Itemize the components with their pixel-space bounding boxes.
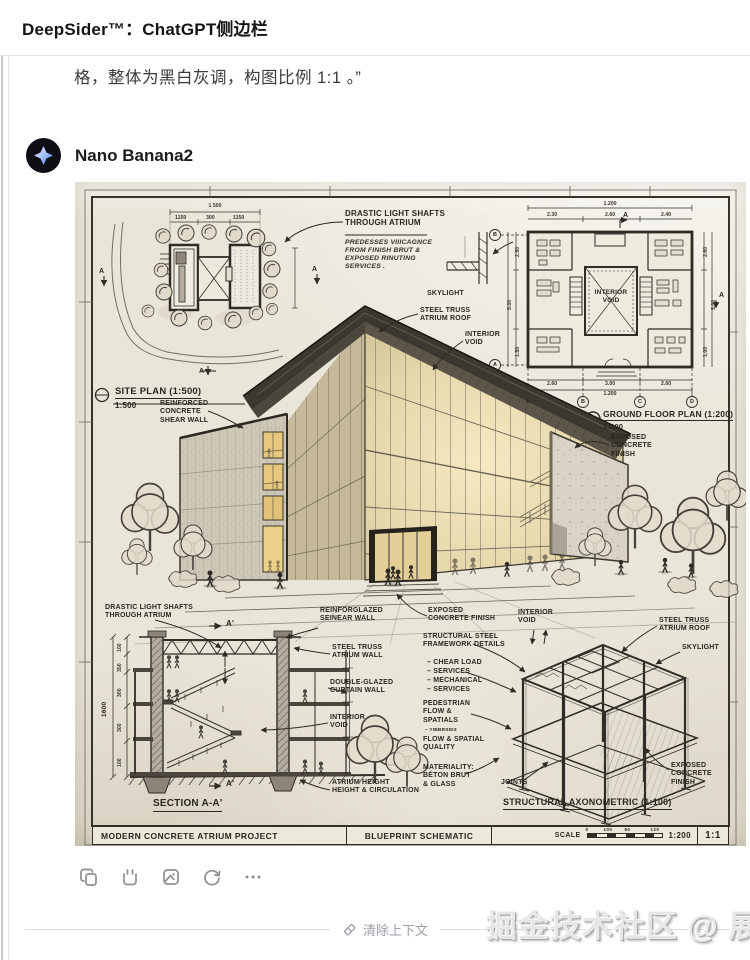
- scale-tick-1: 100: [604, 827, 613, 832]
- axo-label-skylight: SKYLIGHT: [682, 644, 719, 652]
- section-label-drastic: DRASTIC LIGHT SHAFTS THROUGH ATRIUM: [105, 604, 193, 621]
- site-marker-a-left: A: [99, 268, 104, 276]
- section-dim-2: 350: [117, 663, 123, 672]
- site-dim-2: 300: [206, 215, 215, 221]
- site-dim-3: 1150: [233, 215, 244, 221]
- label-shear-wall: REINFORCED CONCRETE SHEAR WALL: [160, 400, 208, 425]
- label-skylight-detail: SKYLIGHT: [427, 290, 464, 298]
- site-marker-a-bottom: A: [199, 368, 204, 376]
- image-icon[interactable]: [160, 866, 182, 888]
- gfp-marker-a-right: A: [719, 292, 724, 300]
- gfp-dim-right-2: 5.00: [711, 300, 717, 310]
- site-dim-1: 1150: [175, 215, 186, 221]
- gfp-dim-left-1: 2.50: [515, 247, 521, 257]
- gfp-dim-top-2: 2.60: [605, 212, 615, 218]
- label-steel-truss-roof: STEEL TRUSS ATRIUM ROOF: [420, 307, 471, 324]
- watermark-text: 掘金技术社区 @ 展菲: [486, 901, 750, 946]
- section-label-truss-wall: STEEL TRUSS ATRIUM WALL: [332, 644, 383, 661]
- site-plan-scale: 1:500: [115, 401, 136, 410]
- section-label-reinforglazed: REINFORGLAZED SEINEAR WALL: [320, 607, 383, 624]
- label-exposed-concrete-right: EXPOSED CONCRETE FINISH: [611, 434, 652, 459]
- label-interior-void-top: INTERIOR VOID: [465, 331, 500, 348]
- section-dim-1: 100: [117, 643, 123, 652]
- scale-value: 1:200: [669, 831, 691, 840]
- axo-label-materiality: MATERIALITY: BÉTON BRUT & GLASS: [423, 764, 474, 789]
- ground-floor-plan-scale: 1:200: [603, 423, 623, 432]
- divider-line-left: [25, 929, 330, 930]
- gfp-dim-right-1: 2.80: [703, 247, 709, 257]
- blueprint-linework: [75, 182, 746, 846]
- site-dim-overall: 1 500: [190, 203, 240, 209]
- gfp-dim-right-3: 1.00: [703, 347, 709, 357]
- gfp-dim-left-3: 1.50: [515, 347, 521, 357]
- gfp-dim-bot-1: 2.60: [547, 381, 557, 387]
- axo-label-steel-framework: STRUCTURAL STEEL FRAMEWORK DETAILS: [423, 633, 505, 650]
- grid-bubble-left-b: B: [489, 232, 501, 238]
- axo-label-flow-quality: FLOW & SPATIAL QUALITY: [423, 736, 484, 753]
- header-bar: DeepSider™：ChatGPT侧边栏: [0, 0, 750, 56]
- gfp-dim-top-3: 2.40: [661, 212, 671, 218]
- site-plan-title: SITE PLAN (1:500): [115, 386, 201, 399]
- scale-tick-3: 120: [651, 827, 660, 832]
- assistant-message-header: Nano Banana2: [26, 138, 193, 173]
- axo-label-exposed-2: EXPOSED CONCRETE FINISH: [671, 762, 712, 787]
- scale-label: SCALE: [555, 832, 581, 839]
- axo-label-joints: JOINTS: [501, 779, 527, 787]
- gfp-dim-top-1: 2.30: [547, 212, 557, 218]
- ground-floor-plan-title: GROUND FLOOR PLAN (1:200): [603, 409, 733, 421]
- axo-label-truss-roof: STEEL TRUSS ATRIUM ROOF: [659, 617, 710, 634]
- clear-context-button[interactable]: 清除上下文: [330, 920, 440, 939]
- scale-bar: 0 100 50 120: [587, 833, 663, 838]
- axo-label-pedestrian: PEDESTRIAN FLOW & SPATIALS: [423, 700, 470, 725]
- section-marker-top: A': [226, 619, 234, 628]
- model-name: Nano Banana2: [75, 146, 193, 166]
- site-marker-a-right: A: [312, 266, 317, 274]
- section-dim-5: 100: [117, 758, 123, 767]
- gfp-dim-bot-2: 3.00: [605, 381, 615, 387]
- app-title: DeepSider™：ChatGPT侧边栏: [22, 15, 268, 40]
- window-edge: [1, 0, 3, 960]
- clear-context-label: 清除上下文: [363, 920, 428, 939]
- section-label-atrium-height: ATRIUM HEIGHT HEIGHT & CIRCULATION: [332, 779, 419, 796]
- gfp-dim-top-overall: 1.200: [575, 201, 645, 207]
- section-dim-overall: 1600: [101, 702, 109, 717]
- section-label-double-glazed: DOUBLE-GLAZED CURTAIN WALL: [330, 679, 393, 696]
- title-block-ratio: 1:1: [697, 827, 728, 844]
- user-message-text: 格，整体为黑白灰调，构图比例 1:1 。”: [74, 64, 674, 88]
- more-options-icon[interactable]: [242, 866, 264, 888]
- section-marker-bottom: A': [226, 779, 234, 788]
- grid-bubble-c: C: [634, 399, 646, 405]
- grid-bubble-a: A: [522, 399, 534, 405]
- eraser-icon: [342, 922, 357, 937]
- regenerate-icon[interactable]: [201, 866, 223, 888]
- note-drastic-light-shafts: DRASTIC LIGHT SHAFTS THROUGH ATRIUM: [345, 209, 445, 228]
- sparkle-star-icon: [32, 144, 55, 167]
- title-block-doc-type: BLUEPRINT SCHEMATIC: [346, 827, 491, 844]
- generated-blueprint-image[interactable]: DRASTIC LIGHT SHAFTS THROUGH ATRIUM PRED…: [75, 182, 746, 846]
- section-dim-3: 300: [117, 688, 123, 697]
- title-block-project: MODERN CONCRETE ATRIUM PROJECT: [93, 827, 346, 844]
- gfp-dim-left-2: 5.00: [507, 300, 513, 310]
- section-title: SECTION A-A': [153, 798, 222, 812]
- axo-label-pedestrian-note: – YIBBRSID3: [425, 728, 457, 734]
- scale-tick-0: 0: [586, 827, 589, 832]
- axo-title: STRUCTURAL AXONOMETRIC (1:100): [503, 797, 672, 810]
- copy-icon[interactable]: [78, 866, 100, 888]
- gfp-marker-a-top: A: [623, 212, 628, 220]
- scale-tick-2: 50: [625, 827, 631, 832]
- note-drastic-body: PREDESSES VIIICAGNCE FROM FINISH BRUT & …: [345, 239, 432, 271]
- grid-bubble-b: B: [577, 399, 589, 405]
- gfp-dim-bot-3: 2.60: [661, 381, 671, 387]
- section-dim-4: 300: [117, 723, 123, 732]
- gfp-dim-bot-overall: 1.200: [575, 391, 645, 397]
- grid-bubble-left-a: A: [489, 362, 501, 368]
- grid-bubble-d: D: [686, 399, 698, 405]
- message-toolbar: [78, 866, 264, 888]
- axo-label-interior-void: INTERIOR VOID: [518, 609, 553, 626]
- axo-label-exposed: EXPOSED CONCRETE FINISH: [428, 607, 495, 624]
- section-label-interior-void: INTERIOR VOID: [330, 714, 365, 731]
- title-block-scale: SCALE 0 100 50 120 1:200: [491, 827, 697, 844]
- axo-label-framework-items: – CHEAR LOAD – SERVICES – MECHANICAL – S…: [427, 658, 482, 694]
- quote-icon[interactable]: [119, 866, 141, 888]
- title-block: MODERN CONCRETE ATRIUM PROJECT BLUEPRINT…: [92, 826, 729, 845]
- assistant-avatar: [26, 138, 61, 173]
- plan-interior-void: INTERIOR VOID: [587, 289, 635, 304]
